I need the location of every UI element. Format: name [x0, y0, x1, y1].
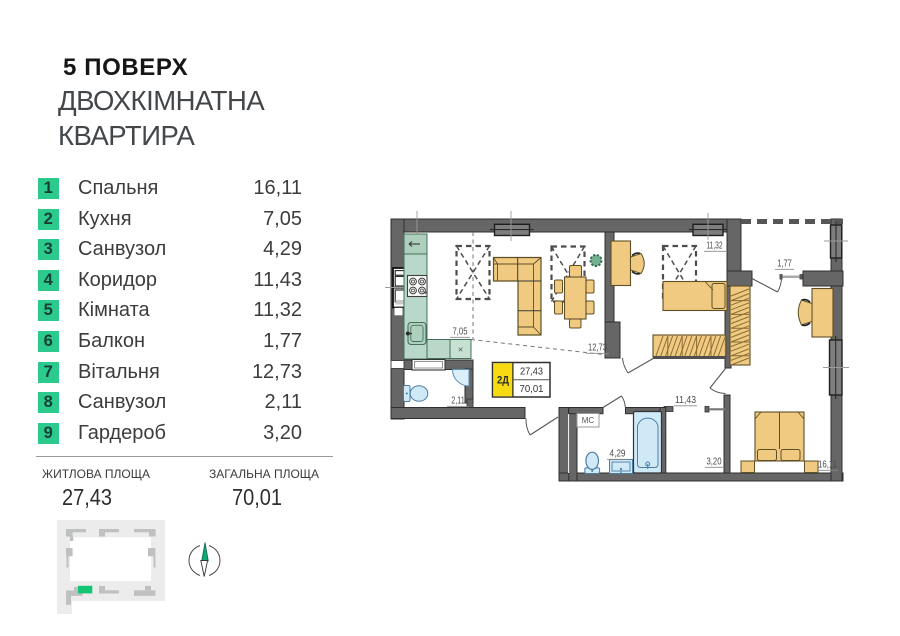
svg-text:7,05: 7,05	[453, 326, 468, 338]
svg-text:1,77: 1,77	[777, 258, 792, 270]
svg-text:27,43: 27,43	[520, 367, 543, 378]
svg-text:МС: МС	[582, 416, 595, 425]
svg-text:11,32: 11,32	[707, 240, 723, 252]
svg-text:4,29: 4,29	[610, 448, 626, 460]
svg-text:3,20: 3,20	[707, 456, 722, 468]
svg-text:70,01: 70,01	[520, 383, 544, 395]
svg-text:16,11: 16,11	[818, 459, 837, 471]
svg-text:11,43: 11,43	[675, 394, 696, 406]
svg-text:12,73: 12,73	[588, 342, 607, 354]
svg-text:2Д: 2Д	[497, 375, 509, 387]
svg-text:2,11: 2,11	[451, 395, 465, 407]
svg-text:×: ×	[458, 345, 463, 355]
